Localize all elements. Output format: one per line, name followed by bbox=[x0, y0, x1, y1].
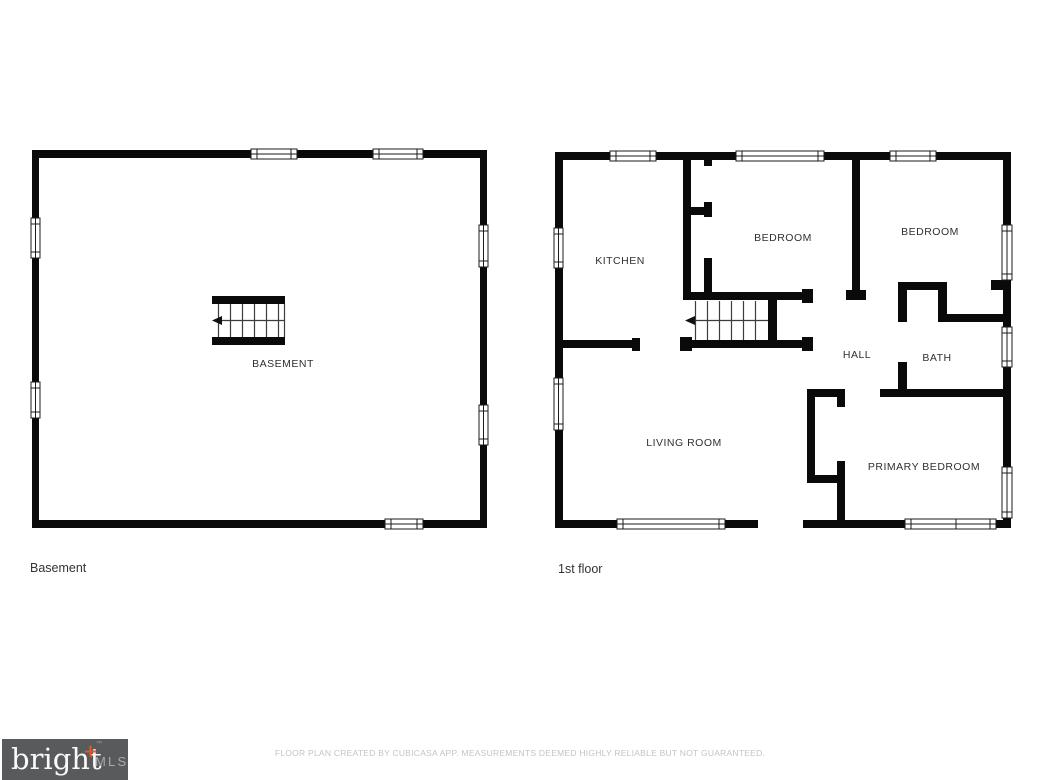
window-icon bbox=[554, 228, 563, 268]
stairs-direction-arrow-icon bbox=[212, 316, 222, 325]
window-icon bbox=[905, 519, 956, 529]
window-icon bbox=[736, 151, 824, 161]
window-icon bbox=[1002, 467, 1012, 518]
caption-1st-floor: 1st floor bbox=[558, 562, 602, 576]
disclaimer-text: FLOOR PLAN CREATED BY CUBICASA APP. MEAS… bbox=[0, 748, 1040, 758]
floor-plan-sheet: BASEMENT KITCHEN BEDROOM BEDROOM HALL BA… bbox=[0, 0, 1040, 780]
window-icon bbox=[373, 149, 423, 159]
stairs-direction-arrow-icon bbox=[685, 316, 695, 325]
room-label-primary-bedroom: PRIMARY BEDROOM bbox=[868, 461, 980, 473]
room-label-bath: BATH bbox=[922, 352, 951, 364]
window-icon bbox=[890, 151, 936, 161]
basement-plan bbox=[31, 149, 488, 529]
window-icon bbox=[31, 218, 40, 258]
room-label-basement: BASEMENT bbox=[252, 358, 314, 370]
window-icon bbox=[251, 149, 297, 159]
brightmls-logo: bright + ™ MLS bbox=[2, 739, 128, 780]
window-icon bbox=[956, 519, 996, 529]
window-icon bbox=[610, 151, 656, 161]
window-icon bbox=[479, 225, 488, 267]
first-floor-stairs bbox=[685, 301, 768, 340]
logo-trademark: ™ bbox=[96, 741, 102, 747]
window-icon bbox=[31, 382, 40, 418]
room-label-hall: HALL bbox=[843, 349, 871, 361]
room-label-bedroom-2: BEDROOM bbox=[901, 226, 959, 238]
window-icon bbox=[554, 378, 563, 430]
window-icon bbox=[1002, 225, 1012, 280]
window-icon bbox=[617, 519, 725, 529]
window-icon bbox=[385, 519, 423, 529]
basement-stairs bbox=[212, 296, 285, 345]
window-icon bbox=[1002, 327, 1012, 367]
room-label-living-room: LIVING ROOM bbox=[646, 437, 722, 449]
room-label-kitchen: KITCHEN bbox=[595, 255, 645, 267]
floor-plan-drawing bbox=[0, 0, 1040, 780]
window-icon bbox=[479, 405, 488, 445]
caption-basement: Basement bbox=[30, 561, 86, 575]
room-label-bedroom-1: BEDROOM bbox=[754, 232, 812, 244]
